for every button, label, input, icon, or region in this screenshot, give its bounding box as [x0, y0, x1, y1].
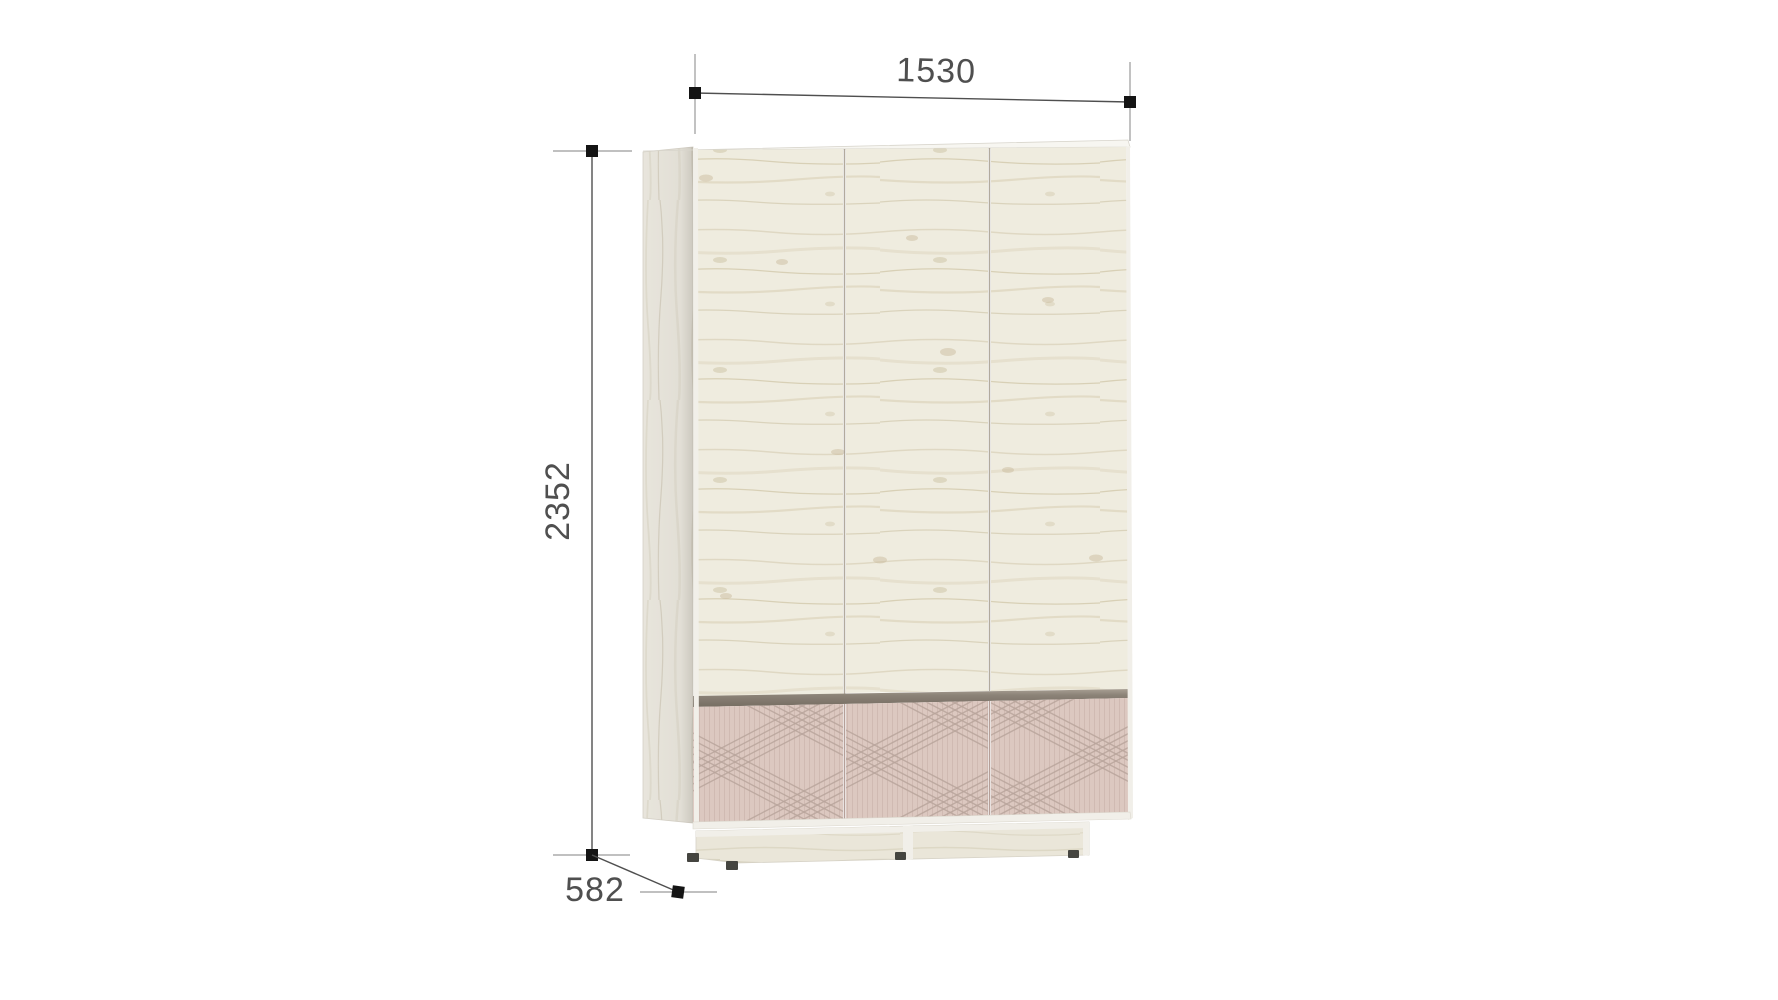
wardrobe-render [643, 140, 1137, 880]
wardrobe-door-left [694, 149, 843, 696]
width-dimension-line [695, 93, 1130, 102]
wardrobe-side-panel-shading [643, 147, 693, 823]
product-dimension-diagram: 1530 2352 582 [0, 0, 1778, 1000]
dimension-marker-icon [586, 145, 598, 157]
height-dimension: 2352 [539, 145, 632, 861]
foot-center [895, 852, 906, 860]
height-dimension-label: 2352 [539, 461, 577, 541]
foot-right [1068, 850, 1079, 858]
dimension-marker-icon [1124, 96, 1136, 108]
wardrobe-door-right [991, 147, 1130, 691]
foot-back-left [687, 853, 699, 862]
dimension-marker-icon [671, 885, 685, 899]
front-left-edge-strip [693, 148, 699, 823]
foot-front-left [726, 861, 738, 870]
plinth-right-band [1083, 822, 1089, 856]
width-dimension: 1530 [689, 51, 1136, 141]
depth-dimension: 582 [565, 855, 717, 909]
width-dimension-label: 1530 [896, 51, 976, 91]
dimension-marker-icon [689, 87, 701, 99]
wardrobe-diagram-canvas: 1530 2352 582 [0, 0, 1778, 1000]
wardrobe-door-center [846, 148, 988, 693]
depth-dimension-label: 582 [565, 871, 625, 909]
